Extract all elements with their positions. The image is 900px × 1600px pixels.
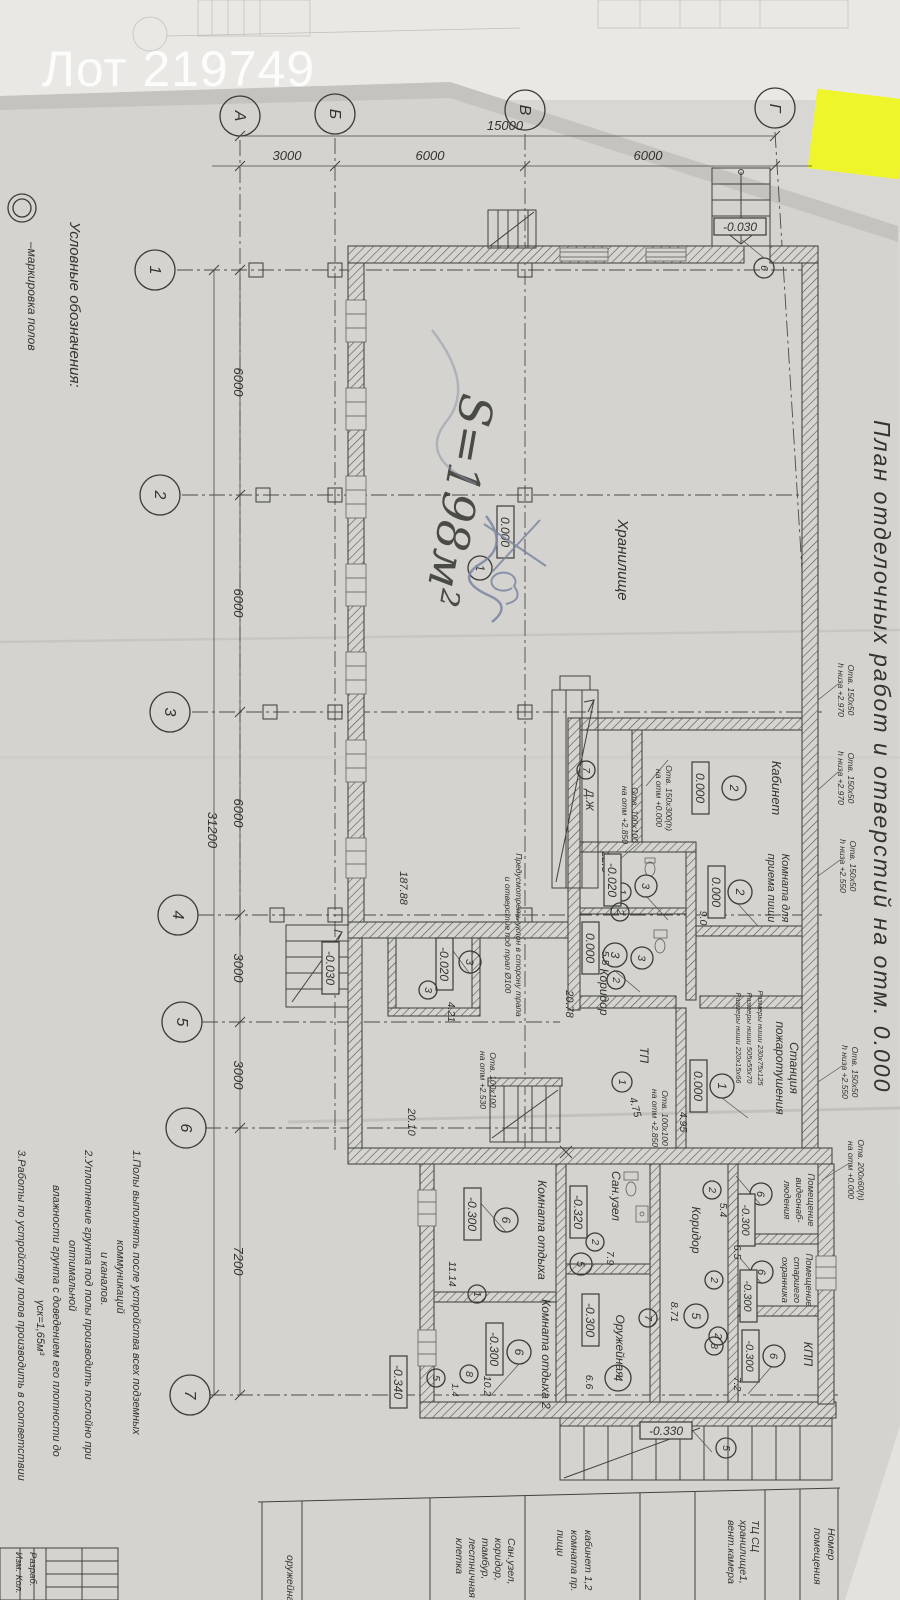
lot-number-overlay: Лот 219749 xyxy=(42,40,315,98)
svg-text:h низа +2.550: h низа +2.550 xyxy=(838,839,848,893)
floor-mark: 2 xyxy=(733,888,747,896)
opening-mark: 2 xyxy=(614,908,626,915)
svg-text:влажности грунта с доведением: влажности грунта с доведением его плотно… xyxy=(50,1185,62,1457)
dim-top-seg-2: 6000 xyxy=(416,148,446,163)
svg-text:комната пр.: комната пр. xyxy=(568,1530,580,1592)
svg-text:-0.030: -0.030 xyxy=(723,220,757,234)
floor-mark: 1 xyxy=(715,1083,729,1090)
room-label: Коридор xyxy=(597,968,611,1015)
level-mark: 0.000 xyxy=(691,1071,705,1101)
svg-text:h низа +2.970: h низа +2.970 xyxy=(836,751,846,805)
level-mark: 0.000 xyxy=(693,773,707,803)
dim-left-seg-6: 7200 xyxy=(231,1247,246,1277)
svg-text:Отв. 150х300(h): Отв. 150х300(h) xyxy=(664,765,674,831)
yellow-sticky-note xyxy=(807,89,900,180)
svg-text:Отв. 150х50: Отв. 150х50 xyxy=(850,1047,860,1098)
drawing-title: План отделочных работ и отверстий на отм… xyxy=(869,420,895,1093)
svg-text:коридор,: коридор, xyxy=(492,1538,504,1581)
level-mark: -0.300 xyxy=(583,1303,597,1337)
axis-letter-a: А xyxy=(231,110,248,122)
floor-mark: 5 xyxy=(689,1313,703,1320)
room-label-line3: охранника xyxy=(779,1257,790,1303)
axis-number-1: 1 xyxy=(146,266,163,275)
svg-text:оружейная: оружейная xyxy=(284,1555,296,1600)
room-area: 7.2 xyxy=(731,1377,743,1392)
svg-text:на отм +0.000: на отм +0.000 xyxy=(654,769,664,827)
axis-letter-b: Б xyxy=(326,109,343,119)
room-label-line2: пожаротушения xyxy=(773,1021,787,1115)
tambour-area: 1.4 xyxy=(449,1383,460,1396)
room-label-line3: людения xyxy=(781,1180,792,1220)
door-mark-dj: Д.Ж xyxy=(583,788,595,812)
dim-total-left: 31200 xyxy=(205,812,220,849)
niche-note-3: Размеры ниши 220х15х66 xyxy=(734,993,743,1085)
axis-letter-v: В xyxy=(516,105,533,116)
svg-text:на отм +2.850: на отм +2.850 xyxy=(620,786,630,844)
level-mark: -0.300 xyxy=(739,1204,751,1236)
floor-mark: 6 xyxy=(512,1349,526,1356)
level-mark: -0.320 xyxy=(571,1195,585,1229)
level-mark: -0.300 xyxy=(741,1280,753,1312)
svg-text:Предусмотреть уклон в сторону: Предусмотреть уклон в сторону трапа xyxy=(514,853,524,1017)
dim-total-top: 15000 xyxy=(487,118,524,133)
axis-number-5: 5 xyxy=(173,1018,190,1027)
room-label-line2: старшего xyxy=(791,1257,802,1303)
axis-letter-g: Г xyxy=(766,104,783,114)
opening-mark: 2 xyxy=(712,1332,724,1339)
level-mark: 0.000 xyxy=(498,517,512,547)
room-area: 11.14 xyxy=(446,1261,458,1287)
floor-mark: 6 xyxy=(499,1217,513,1224)
floor-mark: 3 xyxy=(463,959,475,966)
opening-mark: 2 xyxy=(589,1238,601,1245)
legend-heading: Условные обозначения: xyxy=(66,221,83,388)
room-area: 4.95 xyxy=(677,1112,689,1133)
schedule-header-line2: помещения xyxy=(811,1528,823,1585)
level-mark: -0.300 xyxy=(743,1340,755,1372)
sub-area: 20.10 xyxy=(405,1107,417,1136)
room-label-line2: приема пищи xyxy=(765,854,777,923)
svg-text:на отм +2.850: на отм +2.850 xyxy=(650,1089,660,1147)
svg-text:h низа +2.970: h низа +2.970 xyxy=(836,663,846,717)
svg-text:Сан.узел,: Сан.узел, xyxy=(505,1538,517,1585)
axis-number-2: 2 xyxy=(151,490,168,500)
room-area: 7.9 xyxy=(604,1251,616,1266)
level-mark-outside: -0.340 xyxy=(390,1356,407,1408)
svg-text:h низа +2.550: h низа +2.550 xyxy=(840,1045,850,1099)
dim-left-seg-5: 3000 xyxy=(231,1061,246,1091)
room-area: 8.71 xyxy=(668,1302,680,1322)
room-area: 4.21 xyxy=(445,1002,457,1022)
opening-mark: 5 xyxy=(430,1375,442,1381)
floor-plan-drawing: А Б В Г 1 2 3 4 5 6 7 xyxy=(0,0,900,1600)
level-mark: -0.300 xyxy=(465,1197,479,1231)
dim-top-seg-1: 3000 xyxy=(273,148,303,163)
dim-left-seg-2: 6000 xyxy=(231,589,246,619)
room-label: Коридор xyxy=(689,1206,703,1253)
dim-left-seg-3: 6000 xyxy=(231,799,246,829)
svg-text:тамбур,: тамбур, xyxy=(479,1538,491,1579)
svg-text:клетка: клетка xyxy=(453,1538,465,1574)
niche-note-2: Размеры ниши 505х55х70 xyxy=(745,993,754,1085)
svg-text:Отв. 100х100: Отв. 100х100 xyxy=(630,787,640,843)
room-label: Оружейная xyxy=(613,1314,627,1378)
room-label: Сан.узел xyxy=(609,1171,623,1221)
floor-mark: 6 xyxy=(754,1191,766,1198)
floor-mark: 3 xyxy=(635,955,647,962)
svg-text:Отв. 150х50: Отв. 150х50 xyxy=(846,753,856,804)
svg-text:кабинет 1,2: кабинет 1,2 xyxy=(582,1530,594,1590)
legend-item-floor-mark: –маркировка полов xyxy=(25,241,39,351)
level-mark: -0.020 xyxy=(605,863,619,897)
floor-mark: 3 xyxy=(639,883,651,890)
svg-text:1.Полы выполнять после устройс: 1.Полы выполнять после устройства всех п… xyxy=(130,1150,142,1435)
svg-text:-0.330: -0.330 xyxy=(649,1424,683,1438)
room-label: Комната отдыха 2 xyxy=(539,1299,553,1409)
dim-left-seg-1: 6000 xyxy=(231,368,246,398)
axis-number-4: 4 xyxy=(169,911,186,920)
axis-number-6: 6 xyxy=(177,1124,194,1133)
svg-text:и отверстие под трап Ø100: и отверстие под трап Ø100 xyxy=(503,877,513,994)
room-area: 187.88 xyxy=(397,871,409,906)
room-area: 20.78 xyxy=(563,989,575,1018)
opening-mark: 1 xyxy=(471,1291,483,1297)
opening-mark: 6 xyxy=(758,265,770,271)
floor-mark: 4 xyxy=(611,1375,625,1382)
room-label-line2: видеонаб- xyxy=(793,1177,804,1222)
level-mark-entry: -0.030 xyxy=(323,951,337,985)
room-label: ТП xyxy=(637,1047,651,1063)
opening-mark: 2 xyxy=(706,1186,718,1193)
titleblock-col2: Разраб. xyxy=(27,1552,38,1586)
floor-mark: 6 xyxy=(767,1353,779,1360)
room-label-line1: Помещение xyxy=(803,1253,814,1306)
room-area: 9.0 xyxy=(697,911,709,926)
floor-mark: 5 xyxy=(574,1261,586,1268)
svg-text:2.Уплотнение грунта под полы п: 2.Уплотнение грунта под полы производить… xyxy=(82,1149,94,1460)
niche-note-1: Размеры ниши 230х75х125 xyxy=(756,990,765,1086)
level-mark: -0.020 xyxy=(437,947,451,981)
svg-text:коммуникаций: коммуникаций xyxy=(114,1240,126,1314)
photo-of-floor-plan: Лот 219749 xyxy=(0,0,900,1600)
svg-text:3.Работы по устройству полов п: 3.Работы по устройству полов производить… xyxy=(15,1150,27,1481)
svg-text:лестничная: лестничная xyxy=(466,1537,478,1598)
floor-mark: 1 xyxy=(616,1079,628,1085)
opening-mark: 3 xyxy=(422,987,434,993)
room-area: 10.2 xyxy=(481,1376,493,1397)
opening-mark: 8 xyxy=(463,1371,475,1377)
svg-text:и каналов.: и каналов. xyxy=(98,1252,110,1306)
level-mark: -0.300 xyxy=(487,1332,501,1366)
svg-text:вент.камера: вент.камера xyxy=(725,1520,737,1584)
axis-number-3: 3 xyxy=(161,708,178,717)
room-label-line1: Комната для xyxy=(779,854,791,923)
room-area: 6.6 xyxy=(583,1375,595,1390)
level-mark: 0.000 xyxy=(709,877,723,907)
floor-mark: 3 xyxy=(608,952,622,959)
titleblock-col1: Изм. Кол. xyxy=(13,1552,24,1594)
svg-text:оптимальной: оптимальной xyxy=(66,1240,78,1311)
level-mark: 0.000 xyxy=(583,933,597,963)
room-area: 6.5 xyxy=(731,1245,743,1260)
svg-text:на отм +0.000: на отм +0.000 xyxy=(846,1141,856,1199)
svg-text:γск=1,65м³: γск=1,65м³ xyxy=(34,1300,46,1356)
axis-number-7: 7 xyxy=(181,1391,198,1401)
floor-mark: 2 xyxy=(727,784,741,792)
room-label: Хранилище xyxy=(614,518,631,600)
room-label-line1: Помещение xyxy=(805,1173,816,1226)
opening-mark: 2 xyxy=(708,1276,720,1283)
room-label: Кабинет xyxy=(769,761,784,816)
svg-text:Отв. 100х100: Отв. 100х100 xyxy=(660,1090,670,1146)
opening-mark: 5 xyxy=(720,1445,732,1451)
dim-top-seg-3: 6000 xyxy=(634,148,664,163)
schedule-header-line1: Номер xyxy=(825,1528,837,1560)
room-label: КПП xyxy=(801,1342,815,1367)
video-room-area: 5.4 xyxy=(717,1203,729,1218)
svg-text:на отм +2.530: на отм +2.530 xyxy=(478,1051,488,1109)
svg-text:Отв. 150х50: Отв. 150х50 xyxy=(848,841,858,892)
svg-text:ТЦ СЦ: ТЦ СЦ xyxy=(749,1520,761,1553)
svg-text:пищи: пищи xyxy=(554,1530,566,1557)
room-label: Комната отдыха xyxy=(535,1180,549,1280)
dim-left-seg-4: 3000 xyxy=(231,954,246,984)
svg-text:-0.340: -0.340 xyxy=(391,1365,405,1399)
svg-text:хранилище1,: хранилище1, xyxy=(737,1519,749,1584)
room-label-line1: Станция xyxy=(787,1042,801,1094)
svg-text:Отв. 150х50: Отв. 150х50 xyxy=(846,665,856,716)
svg-text:Отв. 200х60(h): Отв. 200х60(h) xyxy=(856,1139,866,1200)
svg-text:Отв. 100х100: Отв. 100х100 xyxy=(488,1052,498,1108)
